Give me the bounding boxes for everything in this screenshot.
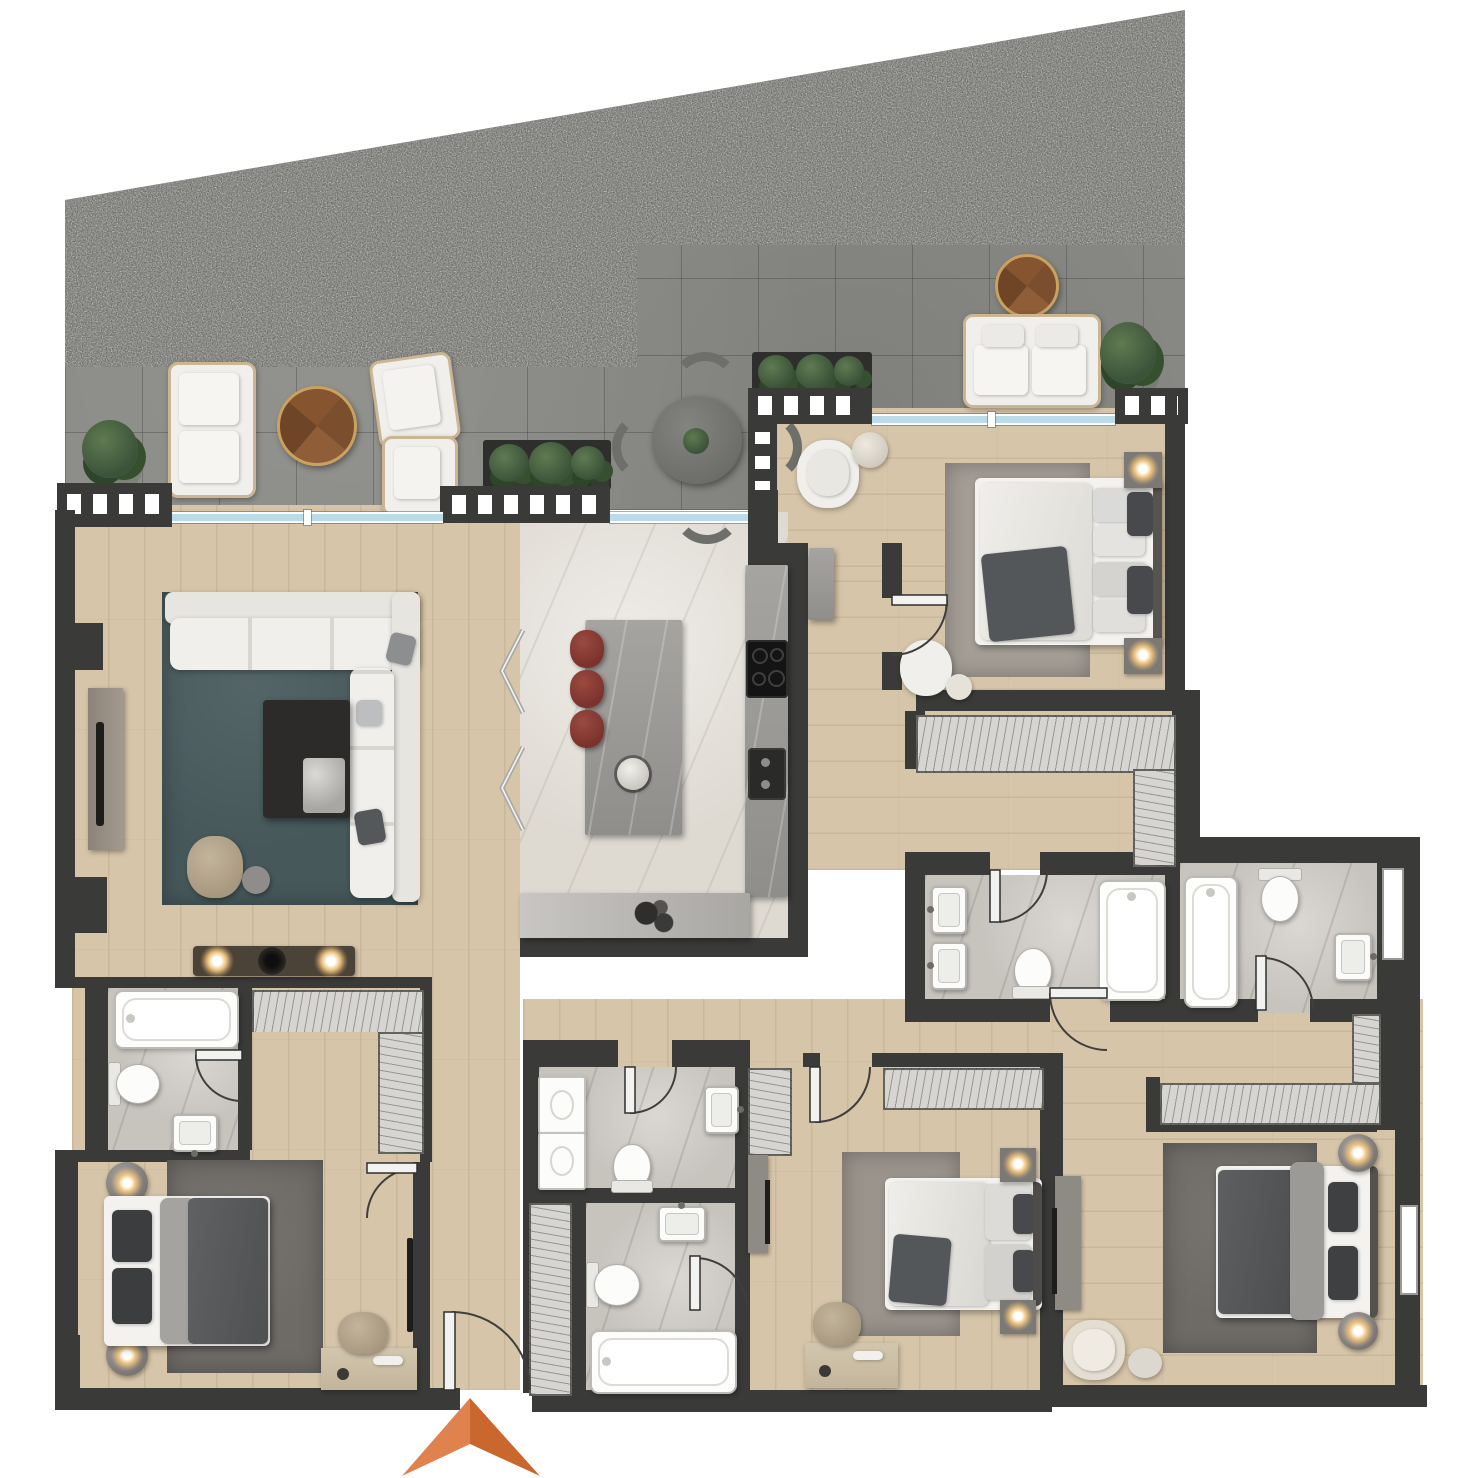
entry-arrow xyxy=(0,0,1462,1478)
floor-plan-canvas xyxy=(0,0,1462,1478)
